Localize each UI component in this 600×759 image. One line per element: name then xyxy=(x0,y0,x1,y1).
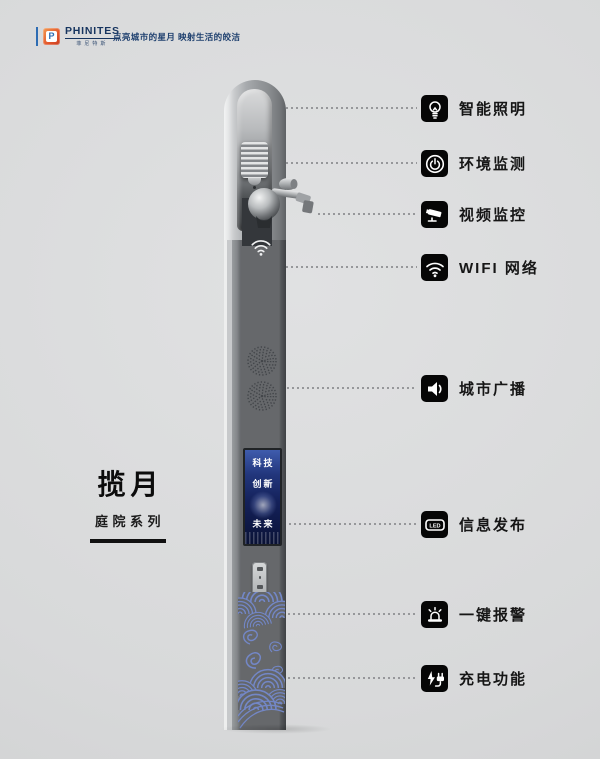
leader-line-info xyxy=(284,523,417,525)
feature-icon-box: LED xyxy=(421,511,448,538)
alarm-icon xyxy=(423,603,447,627)
environment-icon xyxy=(423,152,447,176)
leader-line-environment xyxy=(286,162,417,164)
feature-icon-box xyxy=(421,254,448,281)
feature-charging: 充电功能 xyxy=(421,665,527,692)
led-icon: LED xyxy=(423,513,447,537)
feature-icon-box xyxy=(421,95,448,122)
speaker-grilles xyxy=(247,346,277,412)
dome-camera xyxy=(248,188,280,220)
charging-icon xyxy=(423,667,447,691)
wifi-icon xyxy=(423,256,447,280)
leader-line-video xyxy=(318,213,417,215)
brand-text-block: PHINITES 菲尼特斯 xyxy=(65,25,120,47)
brand-name: PHINITES xyxy=(65,25,120,39)
feature-label: 信息发布 xyxy=(459,514,527,535)
wave-pattern-decoration xyxy=(238,592,285,730)
feature-icon-box xyxy=(421,375,448,402)
feature-label: 视频监控 xyxy=(459,204,527,225)
leader-line-alarm xyxy=(288,613,417,615)
pole-wifi-mark-icon xyxy=(250,238,272,257)
product-series: 庭院系列 xyxy=(84,511,172,530)
feature-one-key-alarm: 一键报警 xyxy=(421,601,527,628)
cctv-icon xyxy=(423,203,447,227)
led-display: 科技 创新 未来 xyxy=(243,448,282,546)
led-display-content: 科技 创新 未来 xyxy=(245,450,280,544)
feature-information-release: LED 信息发布 xyxy=(421,511,527,538)
brand-logo-icon: P xyxy=(43,28,60,45)
panel-slot-top xyxy=(257,567,263,571)
screen-line-1: 科技 xyxy=(250,456,274,469)
feature-label: 城市广播 xyxy=(459,378,527,399)
bulb-icon xyxy=(423,97,447,121)
feature-environment-monitoring: 环境监测 xyxy=(421,150,527,177)
brand-tagline: 点亮城市的星月 映射生活的皎洁 xyxy=(113,31,240,43)
brand-subname: 菲尼特斯 xyxy=(65,40,120,47)
led-icon-text: LED xyxy=(429,523,440,529)
screen-line-2: 创新 xyxy=(250,477,274,490)
alarm-button-panel xyxy=(252,562,267,595)
brand-logo: P PHINITES 菲尼特斯 xyxy=(36,25,120,47)
screen-astronaut-graphic xyxy=(249,491,277,519)
feature-label: 环境监测 xyxy=(459,153,527,174)
feature-label: 充电功能 xyxy=(459,668,527,689)
product-name-underline xyxy=(90,539,166,543)
product-name-block: 揽月 庭院系列 xyxy=(84,463,172,543)
feature-label: 一键报警 xyxy=(459,604,527,625)
feature-video-surveillance: 视频监控 xyxy=(421,201,527,228)
ground-shadow xyxy=(196,722,356,736)
camera-assembly xyxy=(236,172,320,246)
screen-skyline-graphic xyxy=(245,532,280,544)
leader-line-broadcast xyxy=(287,387,417,389)
leader-line-smart-lighting xyxy=(286,107,417,109)
product-name: 揽月 xyxy=(84,463,172,503)
side-camera-mount xyxy=(302,200,314,214)
feature-smart-lighting: 智能照明 xyxy=(421,95,527,122)
feature-label: WIFI 网络 xyxy=(459,257,539,278)
smart-pole-illustration: 科技 创新 未来 xyxy=(224,80,286,730)
feature-icon-box xyxy=(421,665,448,692)
feature-city-broadcast: 城市广播 xyxy=(421,375,527,402)
feature-label: 智能照明 xyxy=(459,98,527,119)
leader-line-wifi xyxy=(286,266,417,268)
leader-line-charging xyxy=(288,677,417,679)
panel-slot-bottom xyxy=(257,585,263,589)
feature-icon-box xyxy=(421,601,448,628)
logo-divider-bar xyxy=(36,27,38,46)
panel-indicator-dot xyxy=(259,576,262,579)
spotlight-lens xyxy=(291,179,298,189)
feature-icon-box xyxy=(421,150,448,177)
feature-wifi-network: WIFI 网络 xyxy=(421,254,539,281)
feature-icon-box xyxy=(421,201,448,228)
poster-page: P PHINITES 菲尼特斯 点亮城市的星月 映射生活的皎洁 揽月 庭院系列 xyxy=(0,0,600,759)
brand-logo-letter: P xyxy=(46,31,57,42)
speaker-icon xyxy=(423,377,447,401)
screen-line-3: 未来 xyxy=(250,517,274,530)
